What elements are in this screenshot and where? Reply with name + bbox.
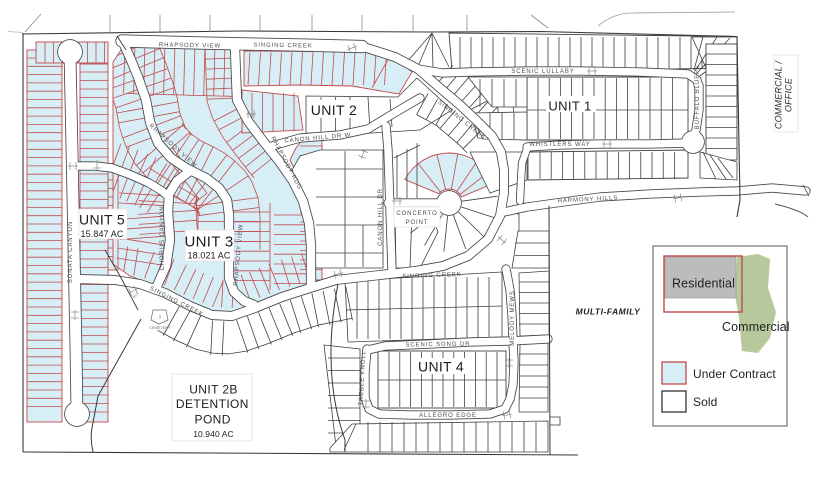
svg-text:DETENTION: DETENTION — [176, 397, 249, 411]
svg-text:CEMETERY: CEMETERY — [149, 326, 171, 330]
svg-text:SCENIC SONG DR: SCENIC SONG DR — [405, 341, 470, 348]
svg-text:SINGING CREEK: SINGING CREEK — [253, 42, 312, 49]
svg-text:15.847 AC: 15.847 AC — [81, 229, 124, 239]
svg-text:18.021 AC: 18.021 AC — [188, 250, 231, 260]
svg-text:CONCERTO: CONCERTO — [396, 211, 437, 217]
svg-text:CANON HILL DR: CANON HILL DR — [378, 188, 384, 246]
svg-text:10.940 AC: 10.940 AC — [193, 429, 234, 439]
svg-text:OFFICE: OFFICE — [784, 77, 794, 112]
svg-text:RHAPSODY VIEW: RHAPSODY VIEW — [159, 42, 221, 49]
svg-text:UNIT 4: UNIT 4 — [418, 359, 464, 375]
svg-text:UNIT 5: UNIT 5 — [79, 212, 125, 228]
svg-text:UNIT 2: UNIT 2 — [311, 102, 358, 118]
svg-text:CHORUS CANYON: CHORUS CANYON — [160, 205, 166, 270]
svg-text:COMMERCIAL /: COMMERCIAL / — [774, 60, 784, 130]
svg-text:ALLEGRO EDGE: ALLEGRO EDGE — [419, 413, 477, 419]
svg-text:Commercial: Commercial — [722, 320, 790, 334]
svg-text:Sold: Sold — [693, 395, 717, 409]
svg-text:Residential: Residential — [672, 277, 735, 291]
svg-text:POINT: POINT — [406, 220, 429, 226]
svg-text:Under Contract: Under Contract — [693, 367, 776, 381]
svg-text:MULTI-FAMILY: MULTI-FAMILY — [576, 307, 642, 317]
svg-text:SONATA CANYON: SONATA CANYON — [68, 221, 74, 284]
svg-text:UNIT 1: UNIT 1 — [548, 99, 591, 114]
svg-text:POND: POND — [195, 412, 231, 426]
svg-text:MELODY MEWS: MELODY MEWS — [510, 290, 516, 345]
svg-text:BUFFALO BLUFFS: BUFFALO BLUFFS — [695, 65, 701, 130]
svg-text:UNIT 2B: UNIT 2B — [189, 383, 238, 397]
svg-text:SCENIC LULLABY: SCENIC LULLABY — [511, 69, 574, 75]
svg-text:WHISTLERS WAY: WHISTLERS WAY — [529, 142, 590, 148]
svg-text:UNIT 3: UNIT 3 — [184, 234, 233, 251]
